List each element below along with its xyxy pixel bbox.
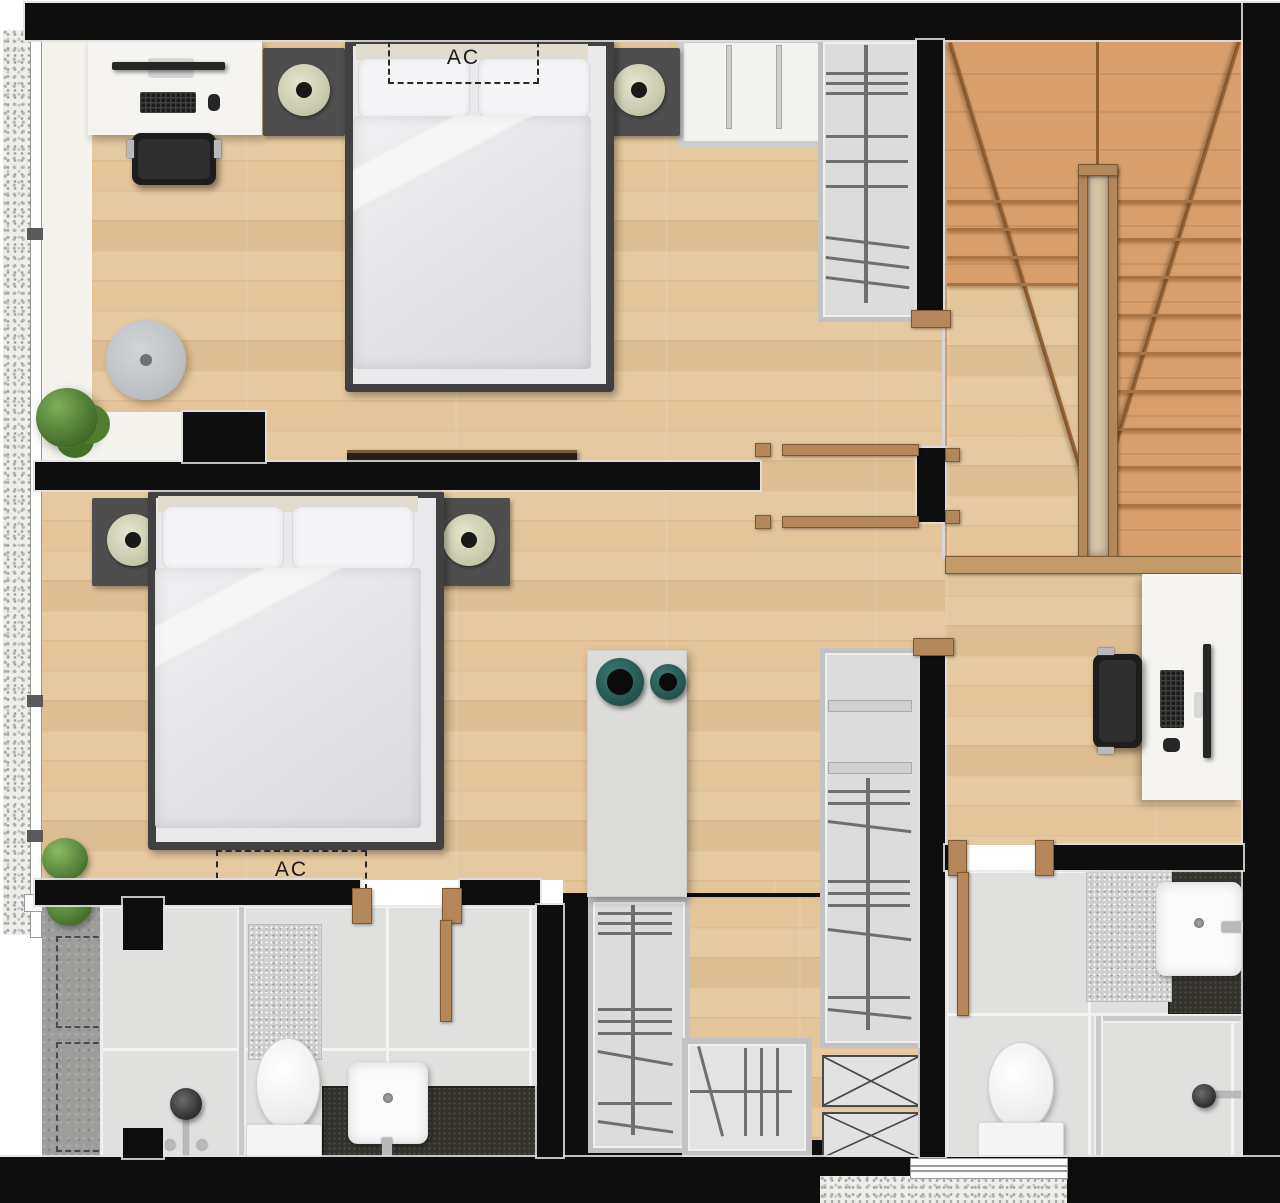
duvet-fold — [155, 568, 421, 708]
wardrobe-shelf-line — [828, 892, 910, 895]
teal-bowl-small — [650, 664, 686, 700]
monitor-stand — [1194, 692, 1203, 718]
shower-head-icon — [1192, 1084, 1216, 1108]
stair-tread — [947, 200, 1080, 203]
bowl-center — [659, 673, 677, 691]
bedroom1-desk — [88, 40, 262, 135]
cabinet-line — [744, 1048, 747, 1136]
bed-duvet — [155, 568, 421, 828]
stair-handrail — [1078, 168, 1088, 562]
wardrobe-shelf-line — [828, 880, 910, 883]
shower-head-icon — [170, 1088, 202, 1120]
balcony-floor — [3, 30, 30, 935]
wall-top — [25, 3, 1280, 40]
hall-desk — [1142, 574, 1241, 800]
bathroom1-sink — [348, 1062, 428, 1144]
door-jamb — [911, 310, 951, 328]
door-leaf-bathroom2 — [957, 872, 969, 1016]
keyboard-icon — [140, 92, 196, 113]
wardrobe-shelf-line — [598, 922, 672, 925]
cabinet-line — [776, 1048, 779, 1136]
wardrobe-shelf-line — [826, 92, 908, 95]
round-rug — [106, 320, 186, 400]
wardrobe-shelf — [828, 700, 912, 712]
wall-bedroom1-east — [917, 40, 943, 312]
mouse-icon — [208, 94, 220, 111]
shower-handle — [165, 1140, 175, 1150]
window-mullion — [27, 228, 43, 240]
wardrobe-shelf-line — [826, 185, 908, 188]
bathroom2-faucet — [1222, 922, 1244, 932]
chair-arm — [127, 140, 134, 158]
wardrobe-shelf-line — [826, 82, 908, 85]
stair-handrail-cap — [1078, 164, 1118, 176]
stair-tread — [1113, 466, 1250, 469]
wall-right — [1243, 3, 1280, 1203]
wardrobe-shelf-line — [598, 1020, 672, 1023]
door-jamb — [755, 443, 771, 457]
ac-label: AC — [275, 858, 308, 882]
chair-arm — [214, 140, 221, 158]
wardrobe-shelf-line — [598, 1032, 672, 1035]
stair-tread — [1113, 314, 1250, 317]
stair-fascia — [945, 556, 1252, 574]
window-mullion — [27, 830, 43, 842]
door-jamb — [352, 888, 372, 924]
wardrobe-shelf-line — [826, 160, 908, 163]
stair-tread — [947, 283, 1080, 286]
duvet-fold — [353, 116, 591, 249]
wall-bedroom2-south-b — [460, 880, 540, 905]
stair-tread — [947, 256, 1080, 259]
speaker-icon — [443, 514, 495, 566]
wall-hall-east — [920, 645, 945, 1157]
door-jamb — [945, 510, 960, 524]
wardrobe-shelf-line — [828, 802, 910, 805]
sink-drain-icon — [383, 1093, 393, 1103]
wardrobe-shelf-line — [826, 72, 908, 75]
wall-t-column — [917, 448, 945, 522]
chair-seat — [138, 139, 210, 179]
chair-arm — [1098, 747, 1114, 754]
rug-center — [140, 354, 152, 366]
cabinet-line — [760, 1048, 763, 1136]
stair-handrail — [1108, 168, 1118, 562]
door-leaf-bathroom1 — [440, 920, 452, 1022]
wall-bathroom2-top-b — [1038, 845, 1243, 870]
sliding-door-bedroom2 — [782, 516, 919, 528]
wall-bathroom1-east — [537, 905, 563, 1157]
wardrobe-shelf-line — [598, 1008, 672, 1011]
stair-tread — [1113, 390, 1250, 393]
stair-void-floor — [947, 285, 1078, 556]
wardrobe-shelf-line — [828, 904, 910, 907]
bathroom1-toilet-tank — [246, 1124, 322, 1159]
ac-label: AC — [447, 46, 480, 70]
speaker-cone — [296, 82, 312, 98]
bedroom1-office-chair — [132, 133, 216, 185]
hall-office-chair — [1093, 654, 1142, 748]
wall-bottom — [0, 1157, 1280, 1203]
shelf-divider — [776, 45, 782, 129]
door-jamb — [442, 888, 462, 924]
bathroom1-faucet — [382, 1138, 392, 1156]
teal-bowl-large — [596, 658, 644, 706]
door-jamb — [948, 840, 967, 876]
wall-bathroom1-west-top — [123, 898, 163, 950]
wardrobe-shelf-line — [826, 135, 908, 138]
wall-bedroom-divider — [35, 462, 760, 490]
shower-pipe — [184, 1114, 188, 1160]
stair-tread — [1113, 428, 1250, 431]
plant-icon — [42, 838, 88, 880]
wardrobe-shelf-line — [828, 790, 910, 793]
bathroom2-toilet-bowl — [988, 1042, 1054, 1130]
speaker-cone — [461, 532, 477, 548]
stair-tread — [1113, 238, 1250, 241]
pillow — [162, 506, 284, 570]
wall-bedroom2-south-a — [35, 880, 360, 905]
bathroom2-window — [910, 1158, 1068, 1179]
bottom-exterior-granite — [820, 1176, 1067, 1203]
chair-seat — [1099, 660, 1136, 742]
bed-duvet — [353, 116, 591, 369]
closet-wardrobe-left — [588, 897, 690, 1153]
pillow — [292, 506, 414, 570]
wardrobe-shelf-line — [598, 932, 672, 935]
door-jamb — [945, 448, 960, 462]
door-jamb — [755, 515, 771, 529]
sink-drain-icon — [1194, 918, 1204, 928]
stair-tread — [1113, 276, 1250, 279]
monitor-icon — [112, 62, 225, 70]
speaker-cone — [631, 82, 647, 98]
shelf-divider — [726, 45, 732, 129]
stair-tread — [1113, 504, 1250, 507]
wall-bathroom1-west-bottom — [123, 1128, 163, 1158]
speaker-cone — [125, 532, 141, 548]
duct-shaft — [822, 1112, 920, 1159]
door-jamb — [1035, 840, 1054, 876]
bathroom2-shower-glass-h — [1094, 1014, 1243, 1023]
mouse-icon — [1163, 738, 1180, 752]
floor-plan: AC AC — [0, 0, 1280, 1203]
keyboard-icon — [1160, 670, 1184, 728]
chair-arm — [1098, 648, 1114, 655]
bowl-center — [607, 669, 633, 695]
stair-tread — [947, 228, 1080, 231]
stair-tread — [1113, 352, 1250, 355]
stair-center-seam — [1096, 40, 1099, 180]
bathroom2-toilet-tank — [978, 1122, 1064, 1158]
speaker-icon — [278, 64, 330, 116]
bathroom1-toilet-bowl — [256, 1038, 320, 1130]
wardrobe-shelf — [828, 762, 912, 774]
wardrobe-shelf-line — [828, 996, 910, 999]
duct-shaft — [822, 1055, 920, 1107]
bathroom1-glass-partition — [237, 905, 246, 1157]
wall-pier — [183, 412, 265, 462]
sliding-door-bedroom1 — [782, 444, 919, 456]
shower-handle — [197, 1140, 207, 1150]
stair-tread — [1113, 200, 1250, 203]
plant-icon — [36, 388, 98, 448]
door-jamb — [913, 638, 954, 656]
speaker-icon — [613, 64, 665, 116]
stair-handrail-inner — [1086, 175, 1108, 556]
monitor-icon — [1203, 644, 1211, 758]
bathroom2-shower-glass-v — [1094, 1014, 1103, 1157]
window-mullion — [27, 695, 43, 707]
wardrobe-shelf-line — [598, 912, 672, 915]
wardrobe-shelf-line — [598, 1102, 672, 1105]
